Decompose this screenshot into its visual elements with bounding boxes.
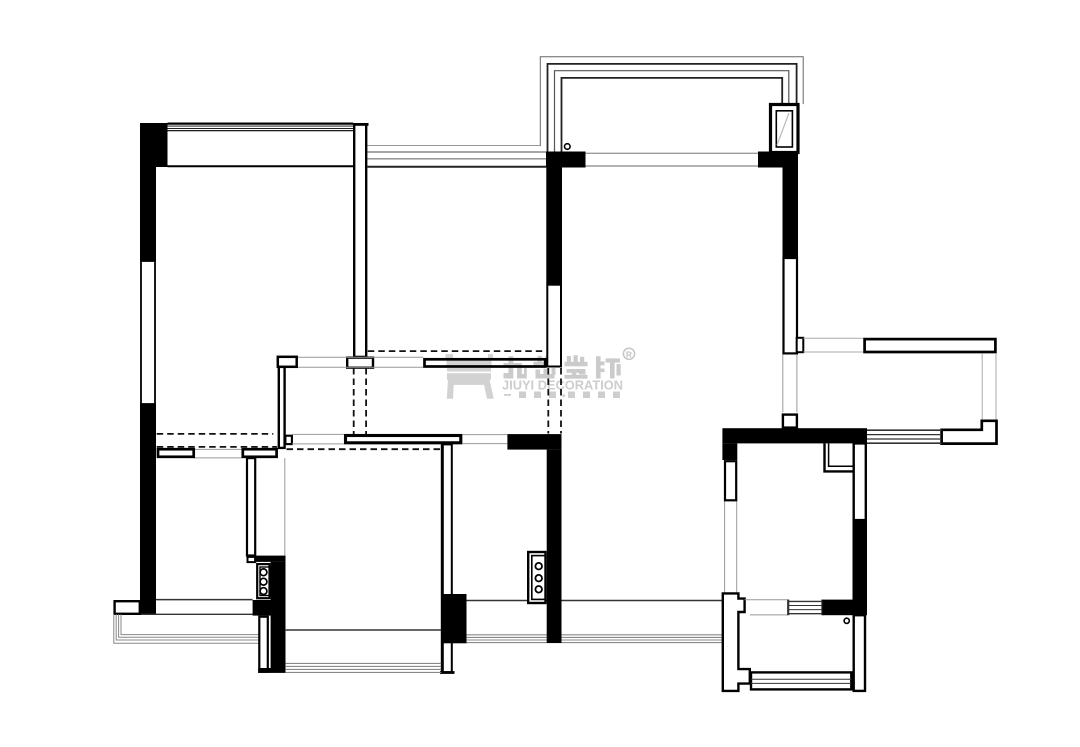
svg-text:JIUYI DECORATION: JIUYI DECORATION bbox=[502, 378, 624, 393]
svg-text:R: R bbox=[626, 349, 632, 359]
